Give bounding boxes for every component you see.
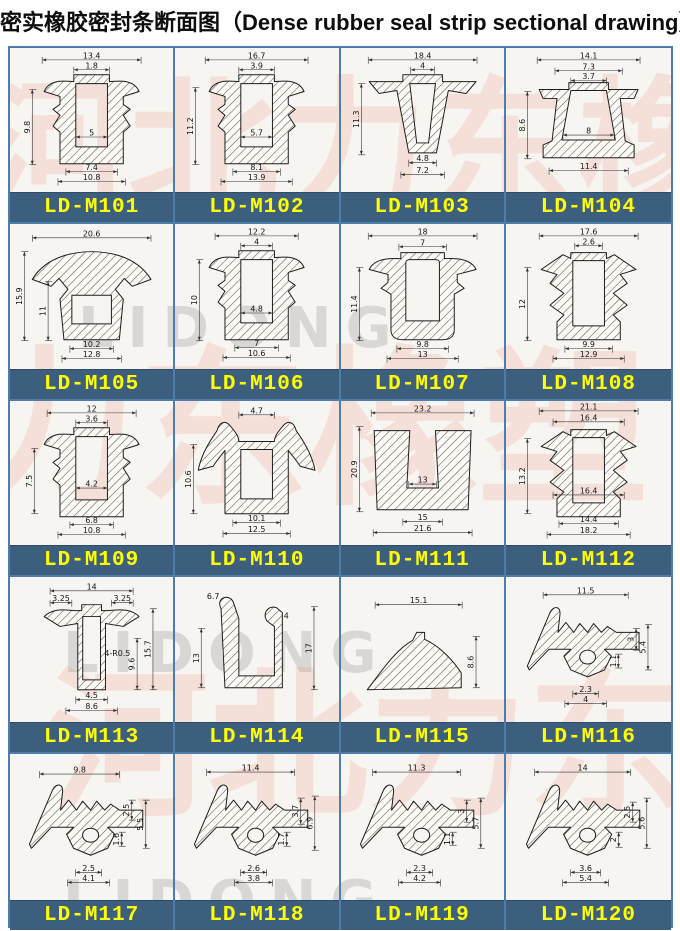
svg-text:3.9: 3.9 xyxy=(251,61,264,70)
svg-text:4.1: 4.1 xyxy=(82,873,95,882)
model-label: LD-M105 xyxy=(10,369,173,399)
sectional-drawing-svg: 9.82.55.51.62.54.1 xyxy=(10,754,173,900)
svg-text:2.5: 2.5 xyxy=(122,803,131,816)
svg-text:14.4: 14.4 xyxy=(580,515,598,524)
drawing-grid: 13.41.89.857.410.8LD-M10116.73.911.25.78… xyxy=(8,46,673,928)
svg-text:4.5: 4.5 xyxy=(85,691,98,700)
svg-text:3.6: 3.6 xyxy=(579,863,592,872)
svg-text:11.2: 11.2 xyxy=(186,117,195,135)
sectional-drawing: 142.55.623.65.4 xyxy=(506,754,671,900)
svg-text:9.8: 9.8 xyxy=(23,121,32,134)
model-label: LD-M109 xyxy=(10,545,173,575)
svg-text:15.1: 15.1 xyxy=(409,596,427,605)
seal-cell: 18711.49.813LD-M107 xyxy=(341,224,506,400)
model-label: LD-M116 xyxy=(506,722,671,752)
svg-text:20.9: 20.9 xyxy=(349,460,358,478)
sectional-drawing-svg: 14.17.33.78.6811.4 xyxy=(506,48,671,192)
svg-text:11.3: 11.3 xyxy=(351,110,360,128)
model-label: LD-M114 xyxy=(175,722,338,752)
drawing-sheet: 河北力东橡塑力东橡塑河北力东LIDONGLIDONGLIDONG 13.41.8… xyxy=(8,46,673,928)
svg-text:12.8: 12.8 xyxy=(83,350,101,359)
sectional-drawing-svg: 11.535.41.12.34 xyxy=(506,577,671,721)
svg-text:2.6: 2.6 xyxy=(247,863,260,872)
svg-text:6.7: 6.7 xyxy=(207,592,220,601)
svg-text:8.1: 8.1 xyxy=(251,163,264,172)
svg-text:7.4: 7.4 xyxy=(85,163,98,172)
model-label: LD-M102 xyxy=(175,192,338,222)
sectional-drawing: 20.615.91110.212.8 xyxy=(10,224,173,368)
svg-text:1.8: 1.8 xyxy=(85,61,98,70)
sectional-drawing-svg: 12.24104.8710.6 xyxy=(175,224,338,368)
sectional-drawing: 11.535.41.12.34 xyxy=(506,577,671,721)
sectional-drawing: 23.220.9131521.6 xyxy=(341,401,504,545)
model-label: LD-M112 xyxy=(506,545,671,575)
svg-text:7.3: 7.3 xyxy=(582,62,595,71)
svg-text:2.5: 2.5 xyxy=(623,805,632,818)
svg-text:7: 7 xyxy=(420,239,425,248)
sectional-drawing: 11.335.71.12.34.2 xyxy=(341,754,504,900)
svg-text:14: 14 xyxy=(87,583,97,592)
svg-text:9.8: 9.8 xyxy=(73,765,86,774)
sectional-drawing: 18.4411.34.87.2 xyxy=(341,48,504,192)
svg-text:17.6: 17.6 xyxy=(580,228,598,237)
svg-text:13: 13 xyxy=(417,475,427,484)
svg-text:16.4: 16.4 xyxy=(580,486,598,495)
svg-text:12: 12 xyxy=(87,404,97,413)
sectional-drawing: 15.18.6 xyxy=(341,577,504,721)
sectional-drawing-svg: 142.55.623.65.4 xyxy=(506,754,671,900)
seal-cell: 143.253.254-R0.515.79.64.58.6LD-M113 xyxy=(10,577,175,753)
sectional-drawing-svg: 123.67.54.26.810.8 xyxy=(10,401,173,545)
svg-text:11.5: 11.5 xyxy=(577,586,595,595)
svg-text:15.7: 15.7 xyxy=(143,641,152,659)
svg-text:7.5: 7.5 xyxy=(25,475,34,488)
svg-text:15.9: 15.9 xyxy=(15,288,24,306)
seal-cell: 4.710.610.112.5LD-M110 xyxy=(175,401,340,577)
svg-text:3.25: 3.25 xyxy=(52,594,70,603)
svg-text:23.2: 23.2 xyxy=(413,404,431,413)
svg-text:2.6: 2.6 xyxy=(582,238,595,247)
sectional-drawing-svg: 11.43.76.91.72.63.8 xyxy=(175,754,338,900)
svg-text:9.8: 9.8 xyxy=(416,341,429,350)
svg-text:10: 10 xyxy=(190,296,199,306)
svg-text:4.2: 4.2 xyxy=(413,873,426,882)
sectional-drawing-svg: 23.220.9131521.6 xyxy=(341,401,504,545)
svg-text:1.7: 1.7 xyxy=(277,832,286,845)
svg-text:8: 8 xyxy=(586,127,591,136)
svg-text:3.25: 3.25 xyxy=(113,594,131,603)
svg-text:7: 7 xyxy=(254,340,259,349)
svg-text:7.2: 7.2 xyxy=(416,166,429,175)
svg-text:6.9: 6.9 xyxy=(306,816,315,829)
svg-text:5: 5 xyxy=(89,129,94,138)
seal-cell: 20.615.91110.212.8LD-M105 xyxy=(10,224,175,400)
svg-text:3.7: 3.7 xyxy=(582,72,595,81)
seal-cell: 13.41.89.857.410.8LD-M101 xyxy=(10,48,175,224)
seal-cell: 14.17.33.78.6811.4LD-M104 xyxy=(506,48,671,224)
svg-text:3: 3 xyxy=(457,808,466,813)
svg-text:11.4: 11.4 xyxy=(242,763,260,772)
svg-text:6.8: 6.8 xyxy=(85,516,98,525)
svg-text:13.9: 13.9 xyxy=(248,173,266,182)
model-label: LD-M108 xyxy=(506,369,671,399)
svg-text:15: 15 xyxy=(417,513,427,522)
svg-text:4.8: 4.8 xyxy=(251,305,264,314)
sectional-drawing-svg: 13.41.89.857.410.8 xyxy=(10,48,173,192)
sectional-drawing: 6.741317 xyxy=(175,577,338,721)
svg-text:5.4: 5.4 xyxy=(638,641,647,654)
sectional-drawing: 14.17.33.78.6811.4 xyxy=(506,48,671,192)
svg-text:1.6: 1.6 xyxy=(112,832,121,845)
svg-text:18: 18 xyxy=(417,228,427,237)
svg-text:5.5: 5.5 xyxy=(136,817,145,830)
svg-text:4.2: 4.2 xyxy=(85,479,98,488)
seal-cell: 123.67.54.26.810.8LD-M109 xyxy=(10,401,175,577)
model-label: LD-M119 xyxy=(341,900,504,930)
sectional-drawing-svg: 6.741317 xyxy=(175,577,338,721)
seal-cell: 15.18.6LD-M115 xyxy=(341,577,506,753)
svg-text:18.4: 18.4 xyxy=(413,51,431,60)
svg-text:2: 2 xyxy=(609,837,618,842)
svg-text:4-R0.5: 4-R0.5 xyxy=(104,649,130,658)
sectional-drawing-svg: 21.116.413.216.414.418.2 xyxy=(506,401,671,545)
svg-text:4.8: 4.8 xyxy=(416,154,429,163)
svg-text:3.6: 3.6 xyxy=(85,414,98,423)
catalog-page: 密实橡胶密封条断面图（Dense rubber seal strip secti… xyxy=(0,0,680,931)
sectional-drawing-svg: 18.4411.34.87.2 xyxy=(341,48,504,192)
seal-cell: 142.55.623.65.4LD-M120 xyxy=(506,754,671,930)
seal-cell: 11.535.41.12.34LD-M116 xyxy=(506,577,671,753)
svg-text:5.6: 5.6 xyxy=(637,816,646,829)
svg-text:4: 4 xyxy=(254,238,259,247)
svg-text:10.8: 10.8 xyxy=(83,173,101,182)
sectional-drawing: 18711.49.813 xyxy=(341,224,504,368)
sectional-drawing-svg: 17.62.6129.912.9 xyxy=(506,224,671,368)
seal-cell: 9.82.55.51.62.54.1LD-M117 xyxy=(10,754,175,930)
sectional-drawing: 143.253.254-R0.515.79.64.58.6 xyxy=(10,577,173,721)
svg-text:21.6: 21.6 xyxy=(413,524,431,533)
svg-text:8.6: 8.6 xyxy=(518,119,527,132)
page-title-en: （Dense rubber seal strip sectional drawi… xyxy=(220,10,680,35)
svg-text:5.7: 5.7 xyxy=(251,129,264,138)
svg-text:13.2: 13.2 xyxy=(518,467,527,485)
seal-cell: 11.335.71.12.34.2LD-M119 xyxy=(341,754,506,930)
svg-text:9.6: 9.6 xyxy=(128,658,137,671)
svg-text:16.4: 16.4 xyxy=(580,413,598,422)
svg-text:4: 4 xyxy=(420,61,425,70)
svg-text:5.7: 5.7 xyxy=(471,816,480,829)
sectional-drawing: 16.73.911.25.78.113.9 xyxy=(175,48,338,192)
model-label: LD-M104 xyxy=(506,192,671,222)
sectional-drawing-svg: 15.18.6 xyxy=(341,577,504,721)
svg-text:11: 11 xyxy=(39,306,48,316)
svg-text:3.7: 3.7 xyxy=(291,804,300,817)
svg-text:1.1: 1.1 xyxy=(443,832,452,845)
svg-text:18.2: 18.2 xyxy=(580,526,598,535)
model-label: LD-M107 xyxy=(341,369,504,399)
seal-cell: 12.24104.8710.6LD-M106 xyxy=(175,224,340,400)
sectional-drawing: 17.62.6129.912.9 xyxy=(506,224,671,368)
svg-text:14.1: 14.1 xyxy=(580,51,598,60)
sectional-drawing-svg: 16.73.911.25.78.113.9 xyxy=(175,48,338,192)
svg-text:2.3: 2.3 xyxy=(413,863,426,872)
seal-cell: 17.62.6129.912.9LD-M108 xyxy=(506,224,671,400)
svg-text:12: 12 xyxy=(518,299,527,309)
svg-text:20.6: 20.6 xyxy=(83,230,101,239)
svg-text:8.6: 8.6 xyxy=(466,656,475,669)
model-label: LD-M120 xyxy=(506,900,671,930)
model-label: LD-M110 xyxy=(175,545,338,575)
sectional-drawing: 4.710.610.112.5 xyxy=(175,401,338,545)
model-label: LD-M103 xyxy=(341,192,504,222)
svg-text:12.5: 12.5 xyxy=(248,525,266,534)
seal-cell: 16.73.911.25.78.113.9LD-M102 xyxy=(175,48,340,224)
svg-text:11.4: 11.4 xyxy=(349,296,358,314)
svg-text:16.7: 16.7 xyxy=(248,51,266,60)
seal-cell: 23.220.9131521.6LD-M111 xyxy=(341,401,506,577)
svg-text:3.8: 3.8 xyxy=(247,873,260,882)
svg-text:11.4: 11.4 xyxy=(580,162,598,171)
svg-text:8.6: 8.6 xyxy=(85,702,98,711)
svg-text:4.7: 4.7 xyxy=(251,406,264,415)
page-title-zh: 密实橡胶密封条断面图 xyxy=(0,10,220,35)
seal-cell: 21.116.413.216.414.418.2LD-M112 xyxy=(506,401,671,577)
seal-cell: 6.741317LD-M114 xyxy=(175,577,340,753)
svg-text:10.6: 10.6 xyxy=(248,349,266,358)
svg-text:5.4: 5.4 xyxy=(579,873,592,882)
svg-text:2.3: 2.3 xyxy=(579,685,592,694)
sectional-drawing-svg: 18711.49.813 xyxy=(341,224,504,368)
model-label: LD-M115 xyxy=(341,722,504,752)
page-title: 密实橡胶密封条断面图（Dense rubber seal strip secti… xyxy=(0,0,680,44)
model-label: LD-M101 xyxy=(10,192,173,222)
model-label: LD-M106 xyxy=(175,369,338,399)
sectional-drawing-svg: 20.615.91110.212.8 xyxy=(10,224,173,368)
svg-text:17: 17 xyxy=(305,643,314,653)
svg-text:11.3: 11.3 xyxy=(407,763,425,772)
svg-text:10.8: 10.8 xyxy=(83,526,101,535)
seal-cell: 18.4411.34.87.2LD-M103 xyxy=(341,48,506,224)
svg-text:10.1: 10.1 xyxy=(248,514,266,523)
svg-text:4: 4 xyxy=(583,695,588,704)
sectional-drawing: 12.24104.8710.6 xyxy=(175,224,338,368)
svg-text:13: 13 xyxy=(192,653,201,663)
svg-text:13.4: 13.4 xyxy=(83,51,101,60)
sectional-drawing-svg: 11.335.71.12.34.2 xyxy=(341,754,504,900)
svg-text:12.2: 12.2 xyxy=(248,228,266,237)
svg-text:9.9: 9.9 xyxy=(582,341,595,350)
sectional-drawing: 11.43.76.91.72.63.8 xyxy=(175,754,338,900)
seal-cell: 11.43.76.91.72.63.8LD-M118 xyxy=(175,754,340,930)
svg-text:12.9: 12.9 xyxy=(580,350,598,359)
svg-text:3: 3 xyxy=(626,637,635,642)
svg-text:10.6: 10.6 xyxy=(184,470,193,488)
sectional-drawing: 9.82.55.51.62.54.1 xyxy=(10,754,173,900)
svg-text:4: 4 xyxy=(284,612,289,621)
sectional-drawing: 13.41.89.857.410.8 xyxy=(10,48,173,192)
svg-text:21.1: 21.1 xyxy=(580,402,598,411)
svg-text:2.5: 2.5 xyxy=(82,863,95,872)
svg-text:14: 14 xyxy=(577,763,587,772)
model-label: LD-M111 xyxy=(341,545,504,575)
sectional-drawing-svg: 4.710.610.112.5 xyxy=(175,401,338,545)
model-label: LD-M113 xyxy=(10,722,173,752)
model-label: LD-M118 xyxy=(175,900,338,930)
svg-text:13: 13 xyxy=(417,350,427,359)
svg-text:10.2: 10.2 xyxy=(83,341,101,350)
sectional-drawing: 123.67.54.26.810.8 xyxy=(10,401,173,545)
sectional-drawing-svg: 143.253.254-R0.515.79.64.58.6 xyxy=(10,577,173,721)
model-label: LD-M117 xyxy=(10,900,173,930)
svg-text:1.1: 1.1 xyxy=(609,655,618,668)
sectional-drawing: 21.116.413.216.414.418.2 xyxy=(506,401,671,545)
